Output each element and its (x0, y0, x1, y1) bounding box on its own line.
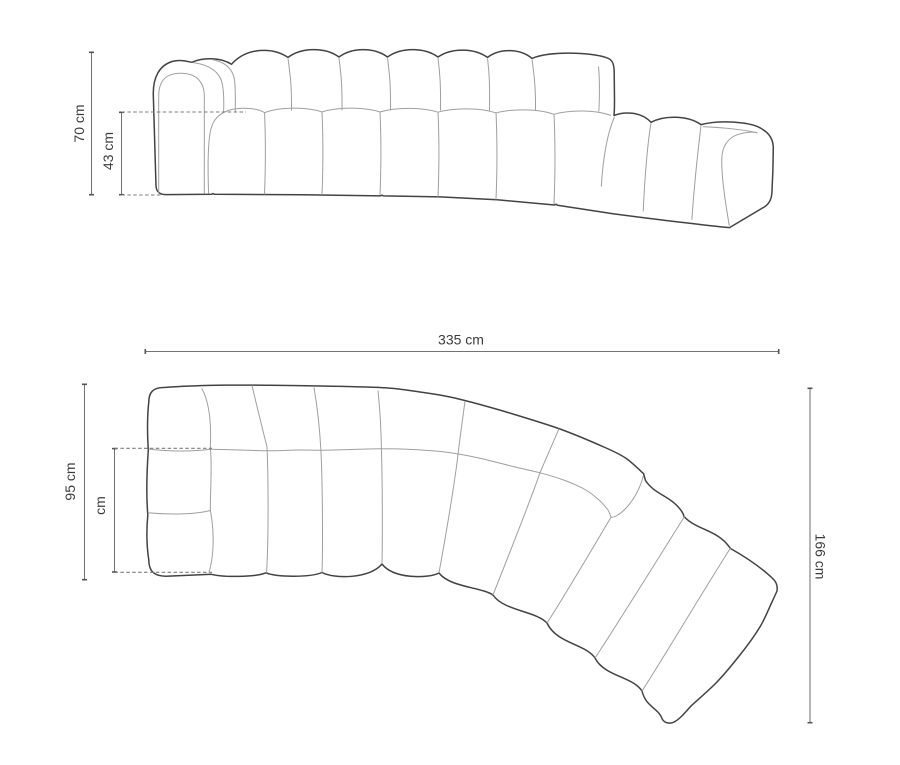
svg-text:95 cm: 95 cm (62, 462, 78, 500)
svg-text:43 cm: 43 cm (100, 132, 116, 170)
svg-text:166 cm: 166 cm (813, 534, 829, 580)
svg-text:335 cm: 335 cm (438, 332, 484, 348)
svg-text:cm: cm (92, 496, 108, 515)
svg-text:70 cm: 70 cm (71, 104, 87, 142)
